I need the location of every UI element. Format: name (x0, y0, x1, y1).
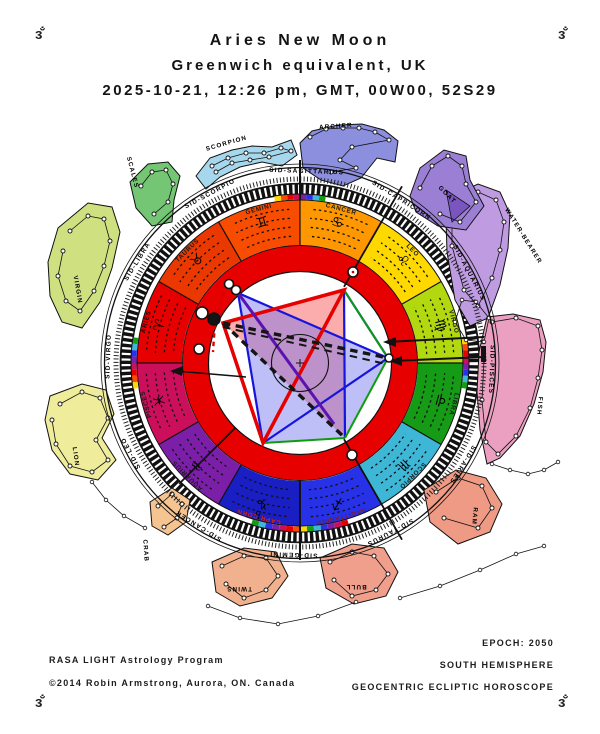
svg-text:SID-VIRGO: SID-VIRGO (104, 334, 113, 379)
svg-text:CRAB: CRAB (141, 539, 150, 562)
planet-marker (196, 307, 208, 319)
hemisphere-label: SOUTH HEMISPHERE (352, 660, 554, 670)
chart-settings: EPOCH: 2050 SOUTH HEMISPHERE GEOCENTRIC … (352, 638, 554, 704)
svg-text:SCALES: SCALES (125, 156, 140, 189)
planet-marker (385, 354, 393, 362)
horoscope-wheel: ♈ARIES♉TAURUS♊GEMINI♋CANCER♌LEO♍VIRGO♎LI… (0, 0, 600, 734)
program-name: RASA LIGHT Astrology Program (49, 655, 295, 665)
constellation-virgin (48, 203, 120, 328)
svg-text:SID-SAGITTARIUS: SID-SAGITTARIUS (269, 167, 344, 177)
svg-text:TWINS: TWINS (226, 585, 252, 592)
svg-text:FISH: FISH (535, 396, 544, 415)
planet-marker (232, 286, 241, 295)
svg-text:WATER-BEARER: WATER-BEARER (503, 207, 543, 265)
page: з̐ з̐ з̐ з̐ Aries New Moon Greenwich equ… (0, 0, 600, 734)
epoch-label: EPOCH: 2050 (352, 638, 554, 648)
constellation-archer (300, 124, 398, 186)
chart-type-label: GEOCENTRIC ECLIPTIC HOROSCOPE (352, 682, 554, 692)
planet-marker (194, 344, 204, 354)
horizon-end-mark (481, 346, 486, 362)
planet-marker (347, 450, 357, 460)
aspect-field (209, 272, 392, 455)
program-credit: RASA LIGHT Astrology Program ©2014 Robin… (49, 655, 295, 701)
planet-marker (208, 313, 220, 325)
svg-text:BULL: BULL (345, 583, 366, 590)
svg-text:SID-GEMINI: SID-GEMINI (269, 550, 318, 559)
copyright: ©2014 Robin Armstrong, Aurora, ON. Canad… (49, 678, 295, 688)
